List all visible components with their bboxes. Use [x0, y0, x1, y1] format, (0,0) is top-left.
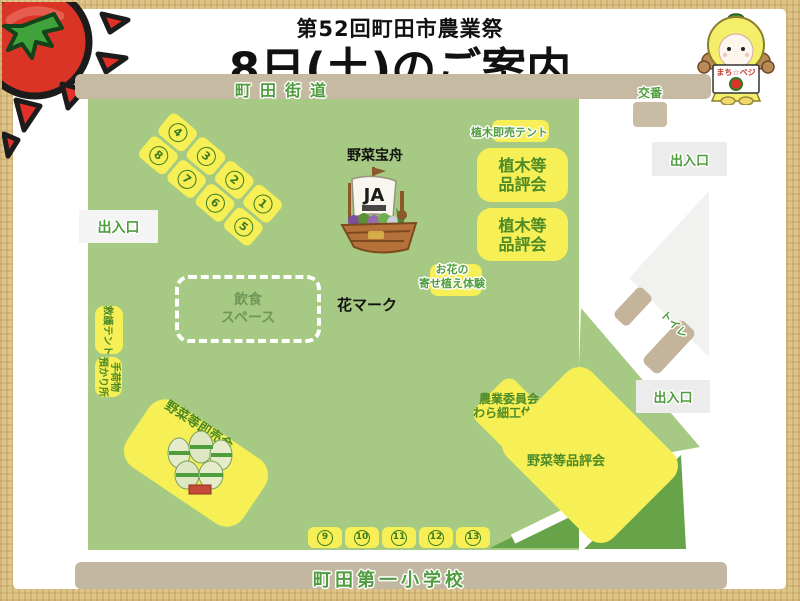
flower-mark-label: 花マーク — [337, 294, 397, 315]
plant-show-box-2: 植木等 品評会 — [477, 208, 568, 261]
food-space: 飲食 スペース — [175, 275, 321, 343]
cabbage-illustration — [163, 425, 235, 495]
police-box — [633, 102, 667, 127]
mascot-sign-text: まち☆ベジ — [716, 68, 755, 77]
treasure-ship-illustration: JA — [338, 165, 420, 257]
booth-11: 11 — [382, 527, 416, 548]
booth-row-bottom: 9 10 11 12 13 — [308, 527, 490, 548]
school-label: 町田第一小学校 — [75, 566, 705, 592]
exit-topright-label: 出入口 — [670, 150, 709, 169]
veg-show-label: 野菜等品評会 — [527, 450, 605, 469]
exit-left-label: 出入口 — [98, 217, 140, 237]
booth-9: 9 — [308, 527, 342, 548]
booth-13: 13 — [456, 527, 490, 548]
ship-sail-logo: JA — [362, 185, 385, 206]
flower-experience-label: お花の 寄せ植え体験 — [408, 263, 496, 291]
exit-left-box: 出入口 — [79, 210, 158, 243]
festival-map-poster: 第52回町田市農業祭 8日(土)のご案内 まち☆ベジ — [0, 0, 800, 601]
road-machida-kaido-label: 町田街道 — [75, 77, 495, 101]
baggage-label: 手荷物 預かり所 — [96, 347, 120, 407]
exit-right-label: 出入口 — [653, 387, 692, 406]
exit-topright-box: 出入口 — [652, 142, 727, 176]
plant-show-box-1: 植木等 品評会 — [477, 148, 568, 202]
planting-tent-label: 植木即売テント — [471, 124, 548, 140]
police-box-label: 交番 — [630, 84, 670, 101]
booth-10: 10 — [345, 527, 379, 548]
booth-12: 12 — [419, 527, 453, 548]
treasure-ship-label: 野菜宝舟 — [347, 145, 403, 165]
exit-right-box: 出入口 — [636, 380, 710, 413]
